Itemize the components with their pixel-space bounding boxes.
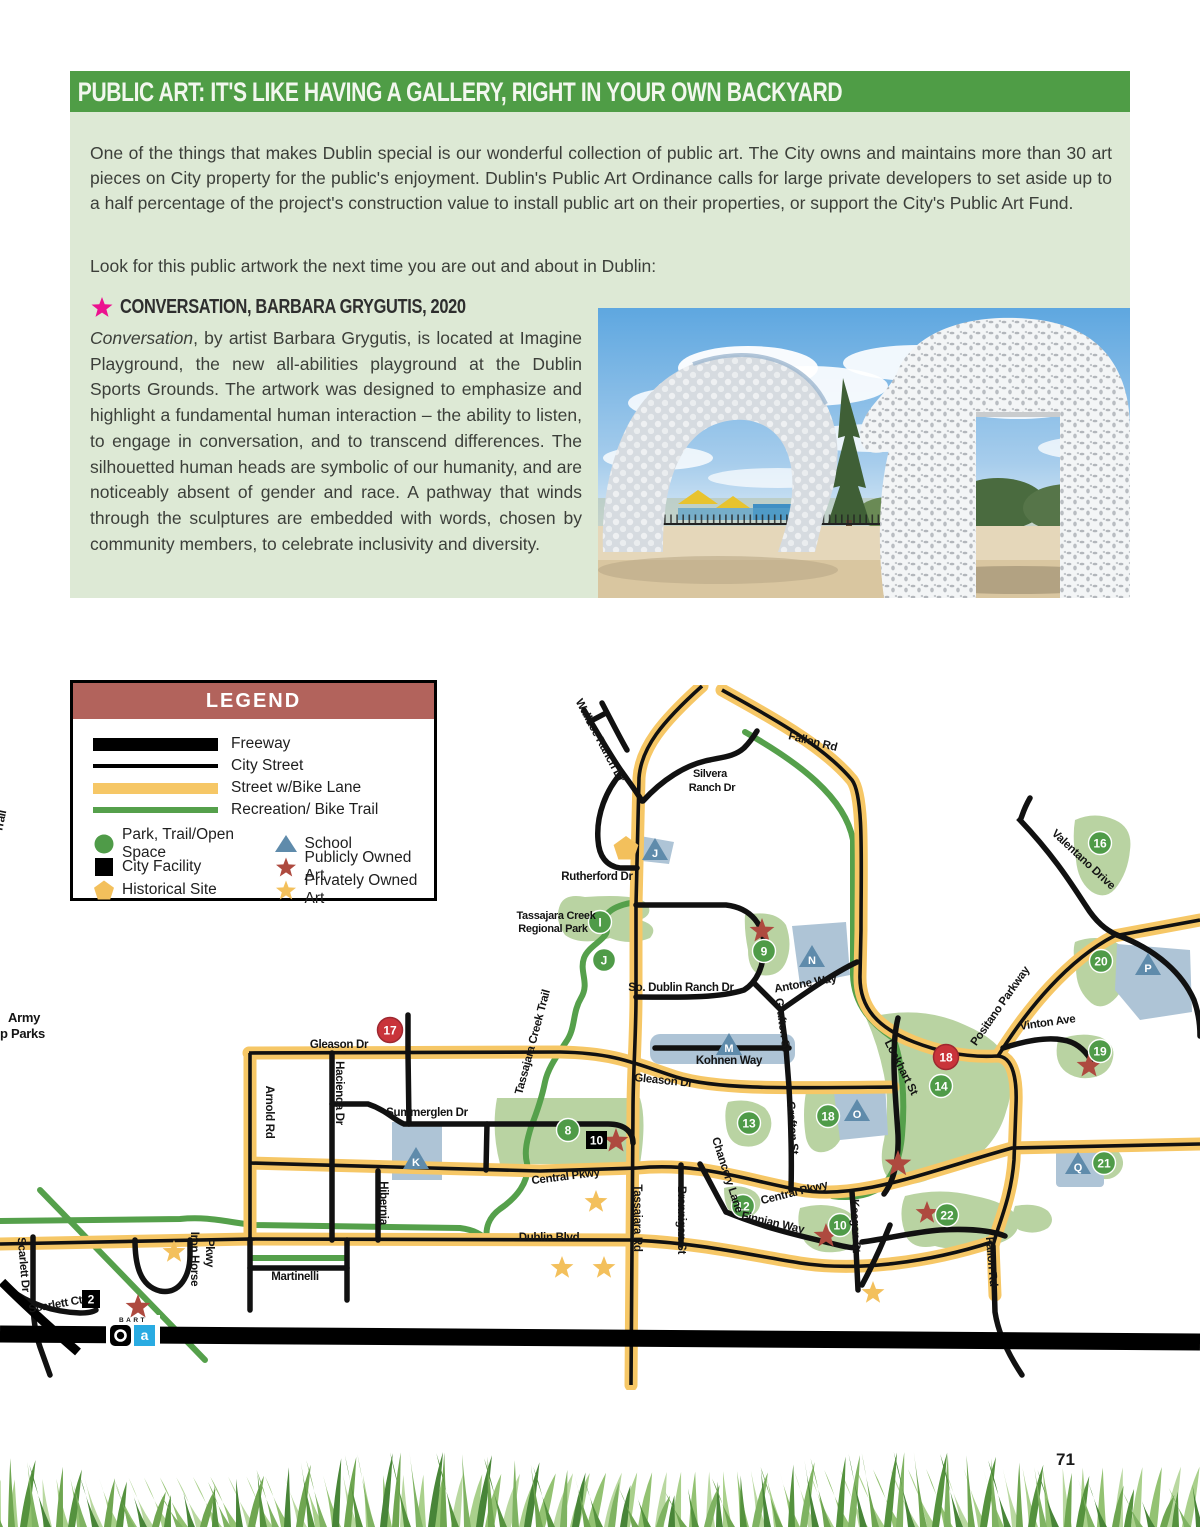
bart-a: a: [141, 1327, 149, 1343]
street-label: Wallace Ranch Dr: [573, 697, 627, 785]
bart-station-logo: BART a: [106, 1315, 160, 1349]
private-art-markers: [163, 1190, 885, 1303]
trail-label: Trail: [0, 809, 9, 833]
street-label: Arnold Rd: [263, 1086, 275, 1139]
artwork-title: CONVERSATION, BARBARA GRYGUTIS, 2020: [120, 296, 466, 319]
marker-10-green: 10: [833, 1219, 847, 1233]
street-label: Iron Horse: [188, 1232, 200, 1287]
street-label: Pkwy: [203, 1239, 215, 1268]
street-label: Keegan St: [848, 1199, 862, 1253]
street-label: Summerglen Dr: [386, 1107, 469, 1119]
artwork-description: Conversation, by artist Barbara Grygutis…: [90, 326, 582, 557]
area-label: Regional Park: [518, 923, 589, 935]
pink-star-icon: [90, 295, 114, 319]
marker-16: 16: [1093, 837, 1107, 851]
marker-10-black: 10: [590, 1134, 604, 1148]
marker-18-green: 18: [821, 1110, 835, 1124]
school-q: Q: [1074, 1162, 1083, 1174]
intro-paragraph: One of the things that makes Dublin spec…: [90, 141, 1112, 217]
marker-17: 17: [383, 1024, 397, 1038]
school-o: O: [853, 1109, 862, 1121]
artwork-body-text: , by artist Barbara Grygutis, is located…: [90, 328, 582, 554]
marker-14: 14: [934, 1080, 948, 1094]
marker-8: 8: [565, 1124, 572, 1138]
street-label: Martinelli: [271, 1271, 319, 1283]
artwork-photo: [598, 308, 1130, 598]
marker-19: 19: [1093, 1045, 1107, 1059]
school-j: J: [652, 848, 658, 860]
page-title: PUBLIC ART: IT'S LIKE HAVING A GALLERY, …: [70, 71, 897, 113]
street-label: Tassajara Rd: [631, 1184, 643, 1251]
school-n: N: [808, 955, 816, 967]
bike-lane-centerlines: [0, 686, 1200, 1385]
street-label: Finnian Way: [740, 1210, 806, 1236]
city-map: BART a J N M K O P Q: [0, 685, 1200, 1390]
marker-18-red: 18: [939, 1051, 953, 1065]
marker-9: 9: [761, 945, 768, 959]
marker-j: J: [601, 954, 608, 968]
area-label: p Parks: [0, 1026, 45, 1041]
school-m: M: [724, 1043, 733, 1055]
street-label: Ranch Dr: [689, 782, 737, 794]
marker-20: 20: [1094, 955, 1108, 969]
street-label: Silvera: [693, 768, 728, 780]
intro-panel: One of the things that makes Dublin spec…: [70, 112, 1130, 598]
street-label: Positano Parkway: [969, 964, 1033, 1048]
marker-22: 22: [940, 1209, 954, 1223]
grass-decoration: [0, 1432, 1200, 1527]
street-label: Rutherford Dr: [561, 871, 633, 883]
marker-i: I: [598, 916, 601, 930]
marker-2: 2: [88, 1293, 95, 1307]
street-label: Dublin Blvd: [519, 1232, 580, 1244]
header-banner: PUBLIC ART: IT'S LIKE HAVING A GALLERY, …: [70, 71, 1130, 112]
bike-lane-streets: [0, 686, 1200, 1385]
artwork-name: Conversation: [90, 328, 193, 348]
area-label: Army: [8, 1010, 41, 1025]
freeway: [0, 1282, 1200, 1352]
school-p: P: [1144, 963, 1151, 975]
street-label: Brannigan St: [675, 1186, 687, 1254]
area-label: Tassajara Creek: [516, 910, 596, 922]
street-label: Grafton St: [784, 1101, 800, 1155]
page: PUBLIC ART: IT'S LIKE HAVING A GALLERY, …: [0, 0, 1200, 1527]
street-label: So. Dublin Ranch Dr: [628, 982, 734, 994]
bart-label: BART: [119, 1317, 147, 1324]
artwork-section: CONVERSATION, BARBARA GRYGUTIS, 2020 Con…: [90, 295, 582, 557]
street-label: Hacienda Dr: [333, 1061, 345, 1126]
street-label: Gleason Dr: [310, 1039, 369, 1051]
intro-lead-in: Look for this public artwork the next ti…: [90, 254, 1112, 279]
school-k: K: [412, 1157, 420, 1169]
city-streets: [8, 703, 1200, 1375]
marker-21: 21: [1097, 1157, 1111, 1171]
street-label: Hibernia: [377, 1181, 389, 1226]
street-label: Kohnen Way: [696, 1055, 763, 1067]
marker-13: 13: [742, 1117, 756, 1131]
